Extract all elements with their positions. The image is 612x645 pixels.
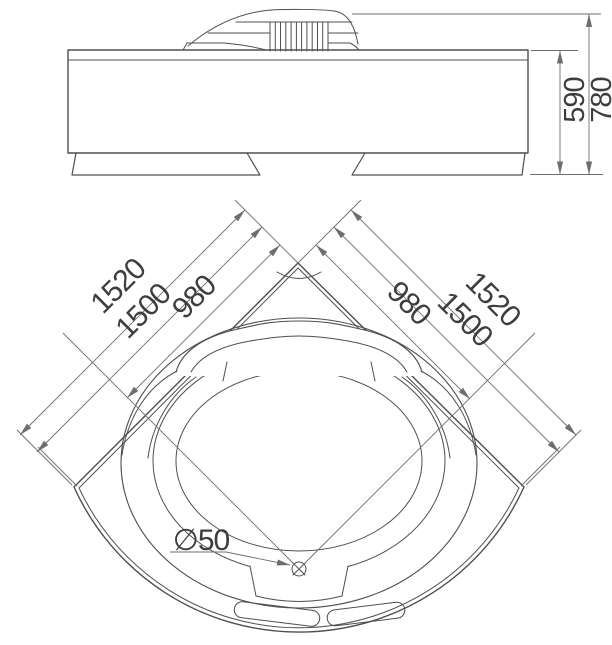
step-front-curve: [256, 596, 342, 602]
dim-label-drain-diameter: ∅50: [173, 524, 230, 557]
ext-tick-right-inner: [521, 447, 560, 486]
step-left-edge: [250, 566, 256, 596]
pillow-left-base: [183, 43, 224, 50]
headrest-pillow-front: [183, 9, 359, 51]
ext-tick-left-outer: [17, 430, 72, 485]
front-elevation-view: [68, 9, 528, 175]
pillow-ribs: [270, 22, 328, 51]
plan-view-dim-labels: 1520 1500 980 980 1500 1520 ∅50: [84, 252, 526, 557]
armrest-contours: [122, 362, 476, 458]
pillow-left-sweep: [224, 43, 266, 50]
dim-label-right-980: 980: [380, 275, 437, 332]
step-right-edge: [342, 566, 348, 596]
footwell-step: [250, 566, 348, 602]
plinth-right-foot: [352, 153, 525, 175]
drain-leader-line: [226, 552, 290, 565]
bathtub-technical-drawing: 590 780: [0, 0, 612, 645]
pillow-right-base: [328, 43, 359, 50]
pillow-dome: [188, 9, 358, 46]
ext-line-apex-left: [235, 200, 298, 263]
front-view-dim-labels: 590 780: [559, 77, 612, 122]
tub-body-outline: [68, 50, 528, 153]
plinth-left-foot: [72, 153, 260, 175]
headrest-mask: [176, 321, 422, 376]
dim-label-left-980: 980: [166, 269, 223, 326]
dim-label-780: 780: [586, 77, 612, 122]
plan-view-dimensions: [17, 200, 581, 569]
drawing-page: 590 780: [0, 0, 612, 645]
ext-tick-left-inner: [38, 447, 77, 486]
ext-line-apex-right: [298, 200, 361, 263]
ext-tick-right-outer: [526, 430, 581, 485]
bottom-pad-left: [233, 601, 320, 627]
